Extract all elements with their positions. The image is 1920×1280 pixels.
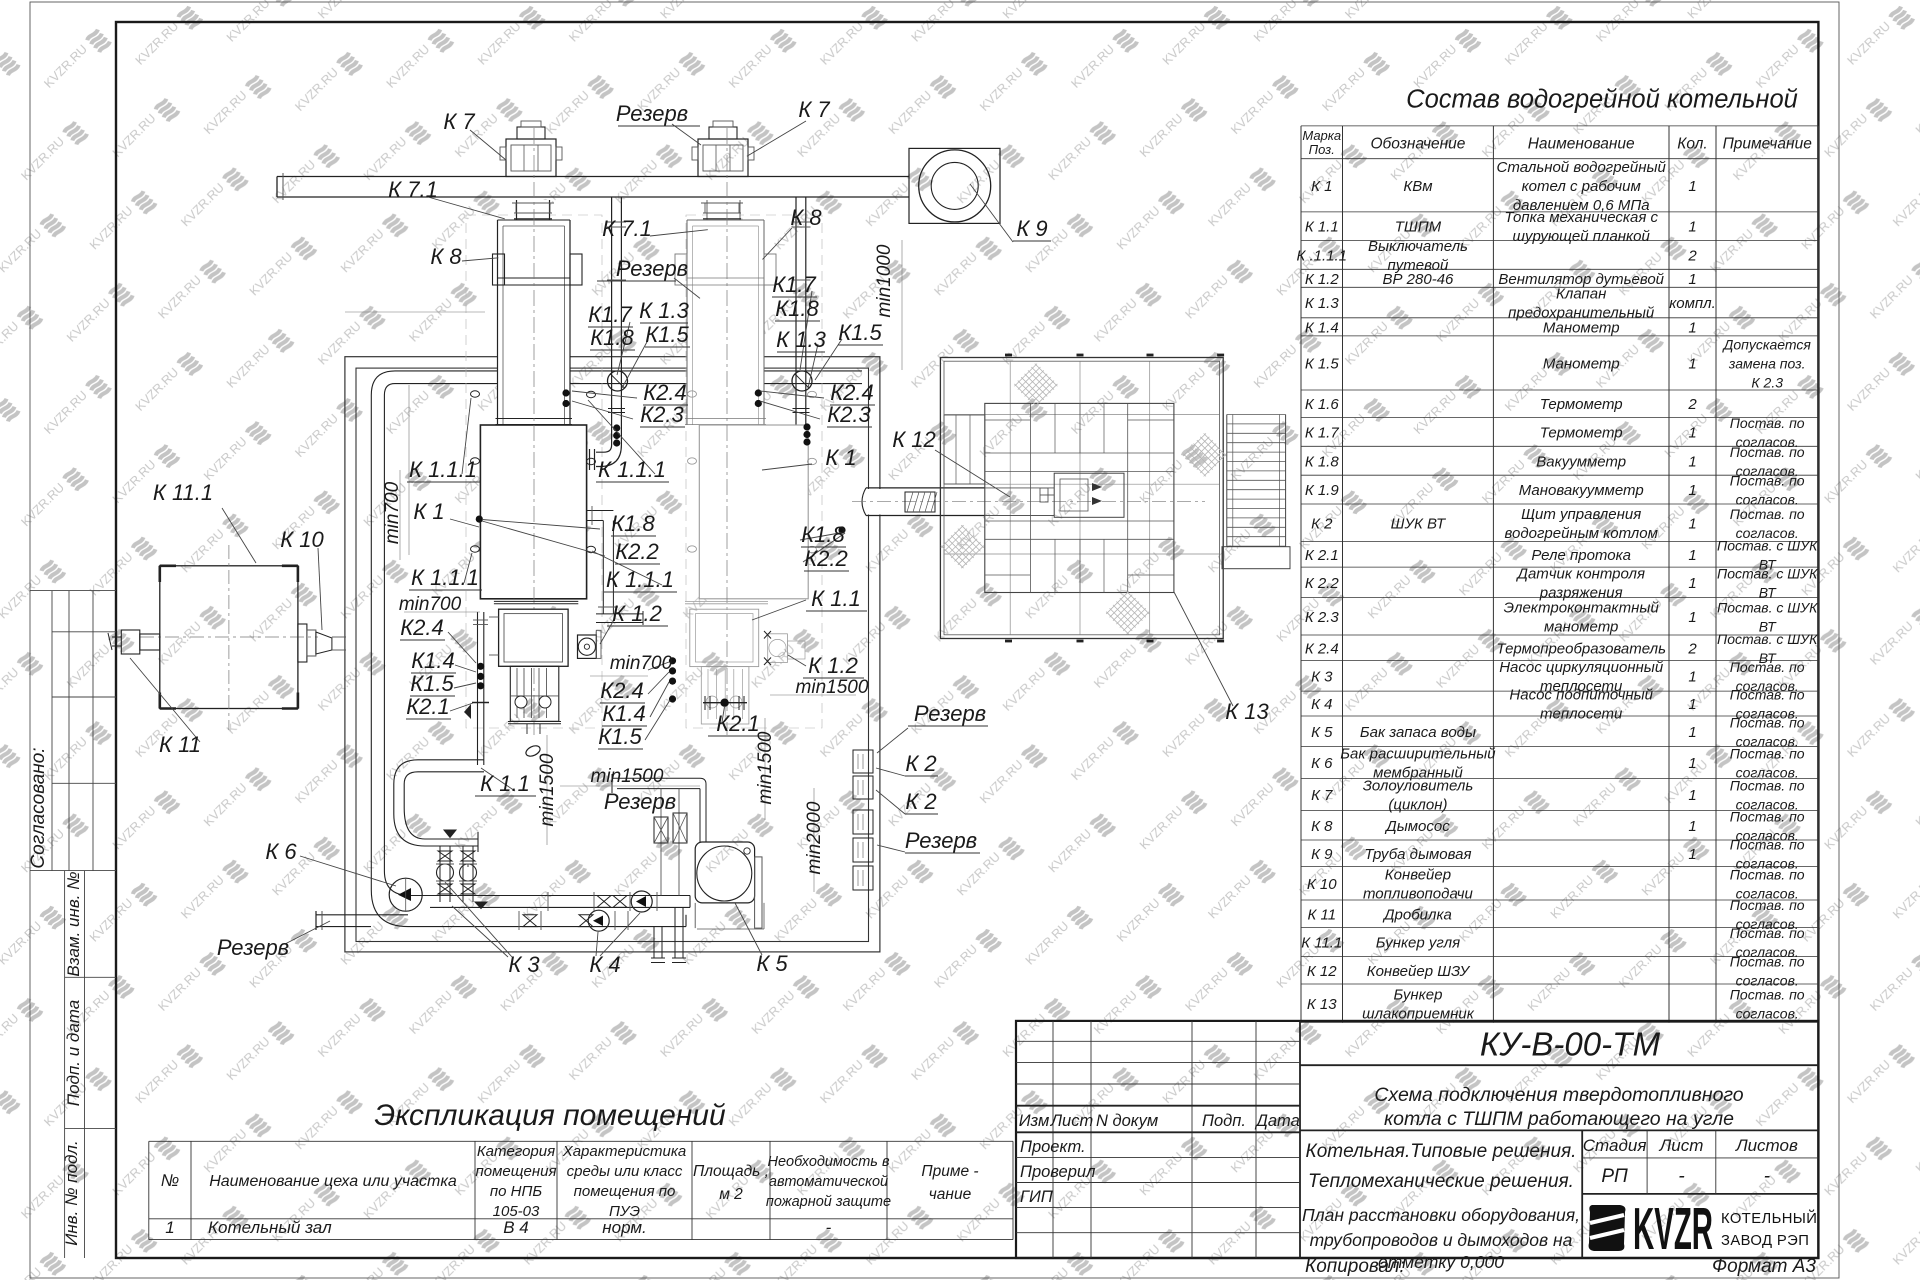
svg-text:К 13: К 13 <box>1307 996 1337 1013</box>
svg-text:К2.1: К2.1 <box>406 694 450 719</box>
svg-text:Насос подпиточный: Насос подпиточный <box>1509 687 1653 704</box>
svg-text:Стадия: Стадия <box>1583 1136 1647 1155</box>
svg-text:Постав. по: Постав. по <box>1730 473 1805 489</box>
svg-text:Конвейер ШЗУ: Конвейер ШЗУ <box>1367 963 1471 980</box>
svg-text:К 8: К 8 <box>1311 818 1333 835</box>
svg-text:К 3: К 3 <box>508 952 540 977</box>
svg-text:Необходимость в: Необходимость в <box>767 1154 889 1170</box>
svg-text:Лист: Лист <box>1050 1112 1093 1130</box>
svg-text:1: 1 <box>1688 424 1696 441</box>
svg-text:К1.5: К1.5 <box>838 320 882 345</box>
svg-text:Примечание: Примечание <box>1723 136 1813 153</box>
svg-text:Постав. по: Постав. по <box>1730 986 1805 1002</box>
svg-text:Бак запаса воды: Бак запаса воды <box>1360 724 1476 741</box>
svg-text:Постав. по: Постав. по <box>1730 808 1805 824</box>
svg-text:ТШПМ: ТШПМ <box>1395 219 1442 236</box>
svg-text:К 1.3: К 1.3 <box>776 327 826 352</box>
svg-text:Тепломеханические решения.: Тепломеханические решения. <box>1308 1171 1574 1192</box>
svg-text:К1.8: К1.8 <box>611 511 655 536</box>
svg-text:норм.: норм. <box>602 1218 646 1237</box>
svg-text:Категория: Категория <box>477 1143 555 1160</box>
svg-text:Термометр: Термометр <box>1540 424 1623 441</box>
svg-text:К 6: К 6 <box>265 839 297 864</box>
svg-text:Резерв: Резерв <box>616 256 688 281</box>
svg-text:м 2: м 2 <box>719 1186 743 1203</box>
svg-text:Резерв: Резерв <box>616 101 688 126</box>
svg-text:К .1.1.1: К .1.1.1 <box>1296 247 1347 264</box>
svg-text:Изм: Изм <box>1019 1112 1050 1130</box>
svg-text:1: 1 <box>1688 271 1696 288</box>
svg-text:1: 1 <box>1688 219 1696 236</box>
svg-text:Бункер угля: Бункер угля <box>1376 935 1460 952</box>
svg-text:Постав. по: Постав. по <box>1730 714 1805 730</box>
svg-text:К 7: К 7 <box>443 109 475 134</box>
svg-text:Постав. по: Постав. по <box>1730 953 1805 969</box>
svg-text:Постав. по: Постав. по <box>1730 687 1805 703</box>
svg-text:Бункер: Бункер <box>1393 986 1442 1003</box>
svg-text:Стальной водогрейный: Стальной водогрейный <box>1497 159 1667 176</box>
svg-text:Копировал:: Копировал: <box>1305 1256 1405 1277</box>
svg-text:Взам. инв. №: Взам. инв. № <box>64 871 83 976</box>
svg-text:Дробилка: Дробилка <box>1382 906 1452 923</box>
svg-text:Наименование: Наименование <box>1528 136 1635 153</box>
svg-text:Постав. по: Постав. по <box>1730 866 1805 882</box>
svg-text:Постав. по: Постав. по <box>1730 897 1805 913</box>
svg-text:1: 1 <box>165 1218 174 1237</box>
svg-text:К 5: К 5 <box>1311 724 1333 741</box>
svg-text:шурующей планкой: шурующей планкой <box>1513 228 1651 245</box>
svg-text:котла с ТШПМ работающего на уг: котла с ТШПМ работающего на угле <box>1384 1108 1734 1130</box>
svg-text:К 11: К 11 <box>1307 906 1336 923</box>
svg-text:ЗАВОД РЭП: ЗАВОД РЭП <box>1721 1233 1809 1249</box>
svg-text:К 4: К 4 <box>589 952 620 977</box>
svg-text:1: 1 <box>1688 575 1696 592</box>
svg-text:1: 1 <box>1688 668 1696 685</box>
svg-text:К 1.1.1: К 1.1.1 <box>598 457 666 482</box>
svg-text:К1.7: К1.7 <box>588 302 632 327</box>
svg-text:К 12: К 12 <box>892 427 936 452</box>
svg-text:Марка: Марка <box>1302 128 1341 143</box>
svg-text:КОТЕЛЬНЫЙ: КОТЕЛЬНЫЙ <box>1721 1209 1817 1227</box>
svg-text:Резерв: Резерв <box>905 828 977 853</box>
svg-text:К 1.2: К 1.2 <box>1305 271 1340 288</box>
svg-text:К 9: К 9 <box>1016 216 1047 241</box>
svg-text:Электроконтактный: Электроконтактный <box>1504 599 1660 616</box>
svg-text:min700: min700 <box>399 594 462 615</box>
svg-text:К 1.4: К 1.4 <box>1305 319 1339 336</box>
svg-text:К 1.6: К 1.6 <box>1305 396 1340 413</box>
svg-text:1: 1 <box>1688 482 1696 499</box>
svg-text:Листов: Листов <box>1735 1136 1798 1155</box>
svg-text:К 4: К 4 <box>1311 696 1332 713</box>
svg-text:min700: min700 <box>382 481 403 544</box>
svg-text:Постав. по: Постав. по <box>1730 415 1805 431</box>
svg-text:1: 1 <box>1688 453 1696 470</box>
svg-text:К 1.1.1: К 1.1.1 <box>409 457 477 482</box>
svg-text:К1.5: К1.5 <box>645 322 689 347</box>
svg-text:К 2.4: К 2.4 <box>1305 640 1339 657</box>
svg-text:1: 1 <box>1688 696 1696 713</box>
svg-text:К 1.1: К 1.1 <box>480 771 530 796</box>
svg-text:Площадь ,: Площадь , <box>693 1163 769 1180</box>
svg-text:К 1.3: К 1.3 <box>639 298 689 323</box>
svg-text:KVZR: KVZR <box>1633 1196 1713 1262</box>
svg-text:К 1.1: К 1.1 <box>811 586 861 611</box>
svg-text:Приме -: Приме - <box>921 1163 978 1180</box>
svg-text:Резерв: Резерв <box>217 935 289 960</box>
svg-text:1: 1 <box>1688 755 1696 772</box>
svg-text:-: - <box>1678 1166 1684 1187</box>
svg-text:К 11.1: К 11.1 <box>153 480 213 505</box>
svg-text:(циклон): (циклон) <box>1388 797 1447 814</box>
svg-text:Постав. по: Постав. по <box>1730 746 1805 762</box>
svg-text:К 7: К 7 <box>1311 787 1333 804</box>
svg-text:Согласовано:: Согласовано: <box>28 747 49 868</box>
svg-text:К 2.3: К 2.3 <box>1305 609 1340 626</box>
svg-text:Резерв: Резерв <box>914 701 986 726</box>
svg-text:К1.4: К1.4 <box>411 648 455 673</box>
svg-text:1: 1 <box>1688 787 1696 804</box>
svg-text:К 13: К 13 <box>1225 699 1269 724</box>
svg-text:К 1.2: К 1.2 <box>808 653 858 678</box>
svg-text:К 2: К 2 <box>1311 515 1333 532</box>
svg-text:К1.7: К1.7 <box>772 272 816 297</box>
svg-text:-: - <box>1764 1166 1770 1187</box>
svg-text:Датчик контроля: Датчик контроля <box>1515 565 1645 582</box>
svg-text:К 1.3: К 1.3 <box>1305 295 1340 312</box>
svg-text:Постав. по: Постав. по <box>1730 836 1805 852</box>
svg-text:Допускается: Допускается <box>1722 336 1812 352</box>
svg-text:Подп. и дата: Подп. и дата <box>64 1000 83 1106</box>
svg-text:2: 2 <box>1687 640 1697 657</box>
svg-text:Постав. по: Постав. по <box>1730 778 1805 794</box>
svg-text:К 1.2: К 1.2 <box>612 601 662 626</box>
svg-text:Постав. с ШУК: Постав. с ШУК <box>1717 565 1818 581</box>
svg-text:Формат А3: Формат А3 <box>1712 1256 1816 1277</box>
svg-text:Характеристика: Характеристика <box>562 1143 687 1160</box>
svg-text:К 10: К 10 <box>280 527 324 552</box>
svg-text:№: № <box>161 1171 179 1190</box>
svg-text:Поз.: Поз. <box>1309 142 1335 157</box>
svg-text:К 1.9: К 1.9 <box>1305 482 1340 499</box>
svg-text:К 1.1.1: К 1.1.1 <box>411 565 479 590</box>
svg-text:КУ-В-00-ТМ: КУ-В-00-ТМ <box>1480 1026 1661 1063</box>
svg-text:водогрейным котлом: водогрейным котлом <box>1505 525 1658 542</box>
svg-text:замена поз.: замена поз. <box>1728 355 1806 371</box>
svg-text:помещения по: помещения по <box>574 1183 676 1200</box>
svg-text:-: - <box>826 1218 832 1237</box>
svg-text:min2000: min2000 <box>804 801 825 874</box>
svg-text:Проект.: Проект. <box>1020 1138 1086 1156</box>
svg-text:Бак расширительный: Бак расширительный <box>1340 746 1496 763</box>
svg-text:1: 1 <box>1688 355 1696 372</box>
svg-text:К1.8: К1.8 <box>590 325 634 350</box>
svg-text:min1500: min1500 <box>796 677 869 698</box>
svg-text:Конвейер: Конвейер <box>1385 866 1451 883</box>
svg-text:топливоподачи: топливоподачи <box>1363 885 1474 902</box>
svg-text:min1500: min1500 <box>591 766 664 787</box>
svg-text:Термопреобразователь: Термопреобразователь <box>1496 640 1666 657</box>
svg-text:К2.2: К2.2 <box>615 539 659 564</box>
svg-text:К2.2: К2.2 <box>804 546 848 571</box>
svg-text:В 4: В 4 <box>503 1218 529 1237</box>
svg-text:Котельная.Типовые решения.: Котельная.Типовые решения. <box>1306 1141 1577 1162</box>
svg-text:Реле протока: Реле протока <box>1531 547 1631 564</box>
svg-text:К1.4: К1.4 <box>602 701 646 726</box>
svg-text:Кол.: Кол. <box>1677 136 1707 153</box>
svg-text:К 2: К 2 <box>905 789 936 814</box>
svg-text:среды или класс: среды или класс <box>567 1163 683 1180</box>
svg-text:Мановакуумметр: Мановакуумметр <box>1519 482 1644 499</box>
svg-text:Постав. по: Постав. по <box>1730 506 1805 522</box>
svg-text:1: 1 <box>1688 724 1696 741</box>
svg-text:Схема подключения твердотоплив: Схема подключения твердотопливного <box>1374 1084 1743 1106</box>
svg-text:N докум: N докум <box>1096 1112 1158 1130</box>
svg-text:Резерв: Резерв <box>604 789 676 814</box>
svg-text:К 1.1: К 1.1 <box>1305 219 1339 236</box>
svg-text:Манометр: Манометр <box>1543 319 1620 336</box>
svg-text:Состав водогрейной котельной: Состав водогрейной котельной <box>1406 86 1798 114</box>
svg-text:манометр: манометр <box>1544 618 1618 635</box>
svg-text:автоматической: автоматической <box>769 1174 888 1190</box>
svg-text:К 8: К 8 <box>790 205 822 230</box>
svg-text:К1.8: К1.8 <box>775 296 819 321</box>
svg-text:пожарной защите: пожарной защите <box>766 1194 891 1210</box>
svg-text:К2.3: К2.3 <box>640 402 684 427</box>
svg-text:К 1.5: К 1.5 <box>1305 355 1340 372</box>
svg-text:1: 1 <box>1688 515 1696 532</box>
svg-text:Золоуловитель: Золоуловитель <box>1363 778 1474 795</box>
svg-text:по НПБ: по НПБ <box>490 1183 542 1200</box>
svg-text:К 12: К 12 <box>1307 963 1337 980</box>
svg-text:Инв. № подл.: Инв. № подл. <box>62 1140 81 1246</box>
svg-text:К 1: К 1 <box>413 499 444 524</box>
svg-text:1: 1 <box>1688 547 1696 564</box>
svg-text:К1.5: К1.5 <box>410 671 454 696</box>
svg-text:ВТ: ВТ <box>1759 584 1777 600</box>
svg-text:Экспликация помещений: Экспликация помещений <box>374 1099 726 1132</box>
svg-text:Насос циркуляционный: Насос циркуляционный <box>1499 659 1664 676</box>
svg-text:ВР 280-46: ВР 280-46 <box>1383 271 1455 288</box>
svg-text:К 8: К 8 <box>430 244 462 269</box>
svg-text:К 7.1: К 7.1 <box>388 177 438 202</box>
svg-text:К 2.2: К 2.2 <box>1305 575 1340 592</box>
svg-text:min1500: min1500 <box>755 731 776 804</box>
svg-text:Постав. с ШУК: Постав. с ШУК <box>1717 537 1818 553</box>
svg-text:Постав. с ШУК: Постав. с ШУК <box>1717 631 1818 647</box>
svg-text:Дымосос: Дымосос <box>1384 818 1450 835</box>
svg-text:К 10: К 10 <box>1307 876 1337 893</box>
svg-text:1: 1 <box>1688 818 1696 835</box>
svg-text:Щит управления: Щит управления <box>1521 506 1641 523</box>
svg-text:К2.4: К2.4 <box>400 615 444 640</box>
svg-text:К2.3: К2.3 <box>827 402 871 427</box>
svg-text:К 1.1.1: К 1.1.1 <box>606 567 674 592</box>
svg-text:План расстановки оборудования,: План расстановки оборудования, <box>1302 1205 1580 1225</box>
svg-text:К 11.1: К 11.1 <box>1301 935 1342 952</box>
svg-text:Обозначение: Обозначение <box>1370 136 1465 153</box>
svg-text:Топка механическая с: Топка механическая с <box>1504 209 1658 226</box>
svg-text:К 3: К 3 <box>1311 668 1333 685</box>
svg-text:теплосети: теплосети <box>1540 706 1623 723</box>
svg-text:К 11: К 11 <box>159 732 201 757</box>
svg-text:1: 1 <box>1688 178 1696 195</box>
svg-text:шлакоприемник: шлакоприемник <box>1362 1005 1475 1022</box>
svg-text:2: 2 <box>1687 247 1697 264</box>
svg-text:К 1: К 1 <box>1311 178 1332 195</box>
svg-text:К 9: К 9 <box>1311 846 1333 863</box>
svg-text:min1000: min1000 <box>874 244 895 317</box>
svg-text:котел с рабочим: котел с рабочим <box>1522 178 1641 195</box>
svg-text:Труба дымовая: Труба дымовая <box>1364 846 1471 863</box>
svg-text:Клапан: Клапан <box>1556 286 1606 303</box>
svg-text:Котельный зал: Котельный зал <box>208 1218 332 1237</box>
svg-text:2: 2 <box>1687 396 1697 413</box>
svg-text:Вакуумметр: Вакуумметр <box>1536 453 1626 470</box>
svg-text:Лист: Лист <box>1659 1136 1704 1155</box>
svg-text:К 2.1: К 2.1 <box>1305 547 1339 564</box>
svg-text:РП: РП <box>1601 1166 1628 1187</box>
svg-text:Выключатель: Выключатель <box>1368 238 1468 255</box>
svg-text:К2.4: К2.4 <box>600 678 644 703</box>
svg-text:1: 1 <box>1688 846 1696 863</box>
svg-text:min1500: min1500 <box>537 753 558 826</box>
svg-text:Манометр: Манометр <box>1543 355 1620 372</box>
svg-text:К1.5: К1.5 <box>598 724 642 749</box>
svg-text:К 2.3: К 2.3 <box>1751 374 1783 390</box>
svg-text:min700: min700 <box>610 653 673 674</box>
svg-text:согласов.: согласов. <box>1736 1005 1799 1021</box>
svg-text:Постав. с ШУК: Постав. с ШУК <box>1717 599 1818 615</box>
svg-text:Проверил: Проверил <box>1020 1163 1095 1181</box>
svg-text:ШУК ВТ: ШУК ВТ <box>1391 515 1447 532</box>
svg-text:Наименование цеха или участка: Наименование цеха или участка <box>209 1173 457 1190</box>
svg-text:Постав. по: Постав. по <box>1730 659 1805 675</box>
svg-text:К 2: К 2 <box>905 751 936 776</box>
svg-text:трубопроводов и дымоходов на: трубопроводов и дымоходов на <box>1310 1230 1573 1250</box>
svg-text:К 7.1: К 7.1 <box>602 216 652 241</box>
svg-text:КВм: КВм <box>1403 178 1432 195</box>
svg-text:К 1.8: К 1.8 <box>1305 453 1340 470</box>
svg-text:К 5: К 5 <box>756 951 788 976</box>
svg-text:К 6: К 6 <box>1311 755 1333 772</box>
svg-text:К 1.7: К 1.7 <box>1305 424 1340 441</box>
svg-text:ГИП: ГИП <box>1020 1188 1053 1206</box>
svg-text:К1.8: К1.8 <box>801 522 845 547</box>
svg-text:Термометр: Термометр <box>1540 396 1623 413</box>
svg-text:компл.: компл. <box>1669 295 1716 312</box>
svg-text:1: 1 <box>1688 609 1696 626</box>
svg-text:Подп.: Подп. <box>1202 1112 1246 1130</box>
svg-text:К 1: К 1 <box>825 445 856 470</box>
svg-text:чание: чание <box>929 1186 972 1203</box>
svg-text:помещения: помещения <box>476 1163 557 1180</box>
svg-text:Постав. по: Постав. по <box>1730 444 1805 460</box>
svg-text:К2.1: К2.1 <box>716 711 760 736</box>
svg-text:К 7: К 7 <box>798 97 830 122</box>
svg-text:1: 1 <box>1688 319 1696 336</box>
svg-text:Постав. по: Постав. по <box>1730 925 1805 941</box>
svg-text:Дата: Дата <box>1254 1112 1300 1130</box>
